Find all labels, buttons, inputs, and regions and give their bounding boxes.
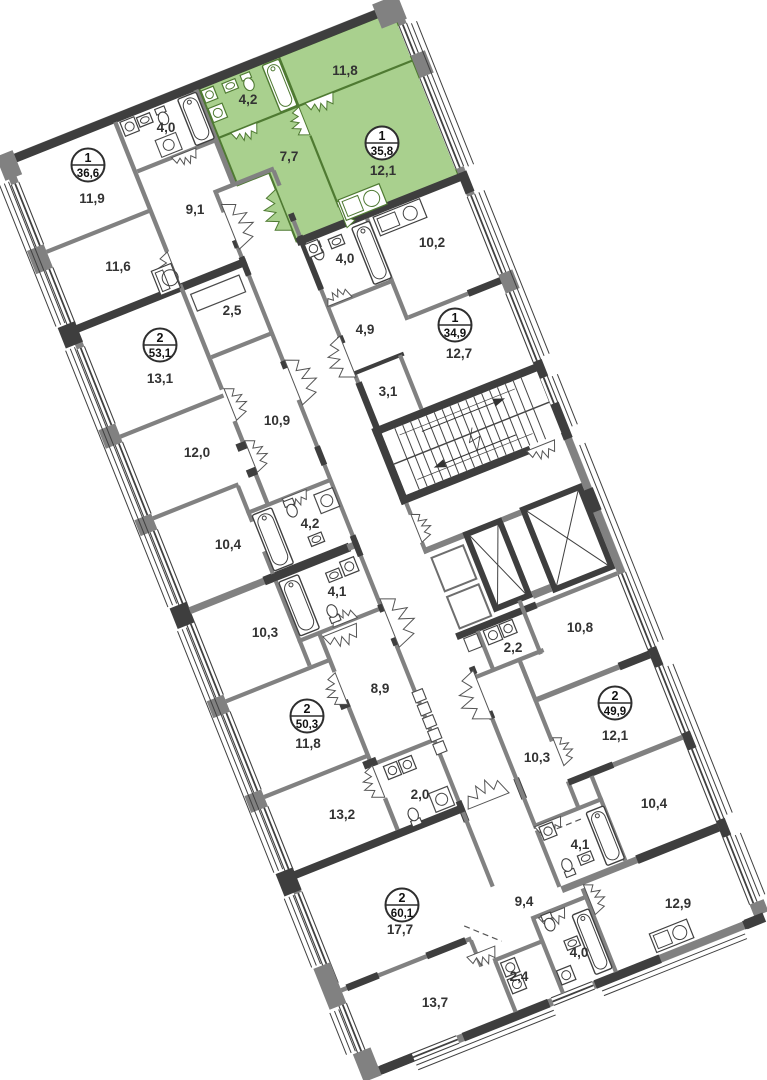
svg-text:4,9: 4,9 — [356, 322, 375, 337]
svg-text:1: 1 — [452, 311, 459, 325]
svg-text:2,0: 2,0 — [411, 787, 430, 802]
svg-text:9,1: 9,1 — [186, 202, 205, 217]
svg-text:11,6: 11,6 — [105, 259, 131, 274]
svg-text:36,6: 36,6 — [77, 168, 99, 180]
svg-text:3,1: 3,1 — [379, 384, 398, 399]
svg-text:12,0: 12,0 — [184, 445, 210, 460]
svg-text:11,8: 11,8 — [332, 63, 358, 78]
svg-text:4,1: 4,1 — [571, 837, 590, 852]
svg-text:2: 2 — [304, 702, 311, 716]
svg-text:2: 2 — [157, 331, 164, 345]
svg-text:60,1: 60,1 — [391, 908, 414, 920]
svg-text:2: 2 — [612, 689, 619, 703]
svg-text:11,9: 11,9 — [79, 191, 105, 206]
svg-text:49,9: 49,9 — [604, 706, 626, 718]
svg-text:4,2: 4,2 — [239, 92, 258, 107]
svg-text:8,9: 8,9 — [371, 681, 390, 696]
svg-text:4,1: 4,1 — [328, 584, 347, 599]
svg-text:7,7: 7,7 — [280, 149, 299, 164]
svg-text:4,0: 4,0 — [336, 251, 355, 266]
svg-text:53,1: 53,1 — [149, 348, 172, 360]
svg-text:34,9: 34,9 — [444, 328, 466, 340]
svg-text:13,1: 13,1 — [147, 371, 174, 386]
svg-text:10,4: 10,4 — [641, 796, 668, 811]
svg-text:10,8: 10,8 — [567, 620, 594, 635]
svg-text:10,4: 10,4 — [215, 537, 242, 552]
svg-text:11,8: 11,8 — [295, 736, 321, 751]
svg-text:2,2: 2,2 — [504, 640, 523, 655]
svg-text:2: 2 — [399, 891, 406, 905]
svg-text:35,8: 35,8 — [371, 146, 394, 158]
svg-text:17,7: 17,7 — [387, 922, 413, 937]
svg-text:2,4: 2,4 — [510, 969, 529, 984]
svg-text:2,5: 2,5 — [223, 303, 242, 318]
svg-text:12,9: 12,9 — [665, 896, 691, 911]
svg-text:50,3: 50,3 — [296, 719, 318, 731]
svg-text:12,7: 12,7 — [446, 346, 472, 361]
svg-text:10,3: 10,3 — [524, 750, 551, 765]
svg-text:10,9: 10,9 — [264, 413, 290, 428]
svg-text:4,0: 4,0 — [570, 945, 589, 960]
svg-text:13,2: 13,2 — [329, 807, 355, 822]
svg-text:1: 1 — [85, 151, 92, 165]
svg-text:12,1: 12,1 — [602, 728, 629, 743]
svg-text:10,3: 10,3 — [252, 625, 279, 640]
svg-text:10,2: 10,2 — [419, 235, 445, 250]
svg-text:13,7: 13,7 — [422, 995, 448, 1010]
svg-text:9,4: 9,4 — [515, 894, 534, 909]
svg-text:4,2: 4,2 — [301, 516, 320, 531]
svg-text:12,1: 12,1 — [370, 163, 397, 178]
svg-text:1: 1 — [379, 129, 386, 143]
svg-text:4,0: 4,0 — [157, 120, 176, 135]
